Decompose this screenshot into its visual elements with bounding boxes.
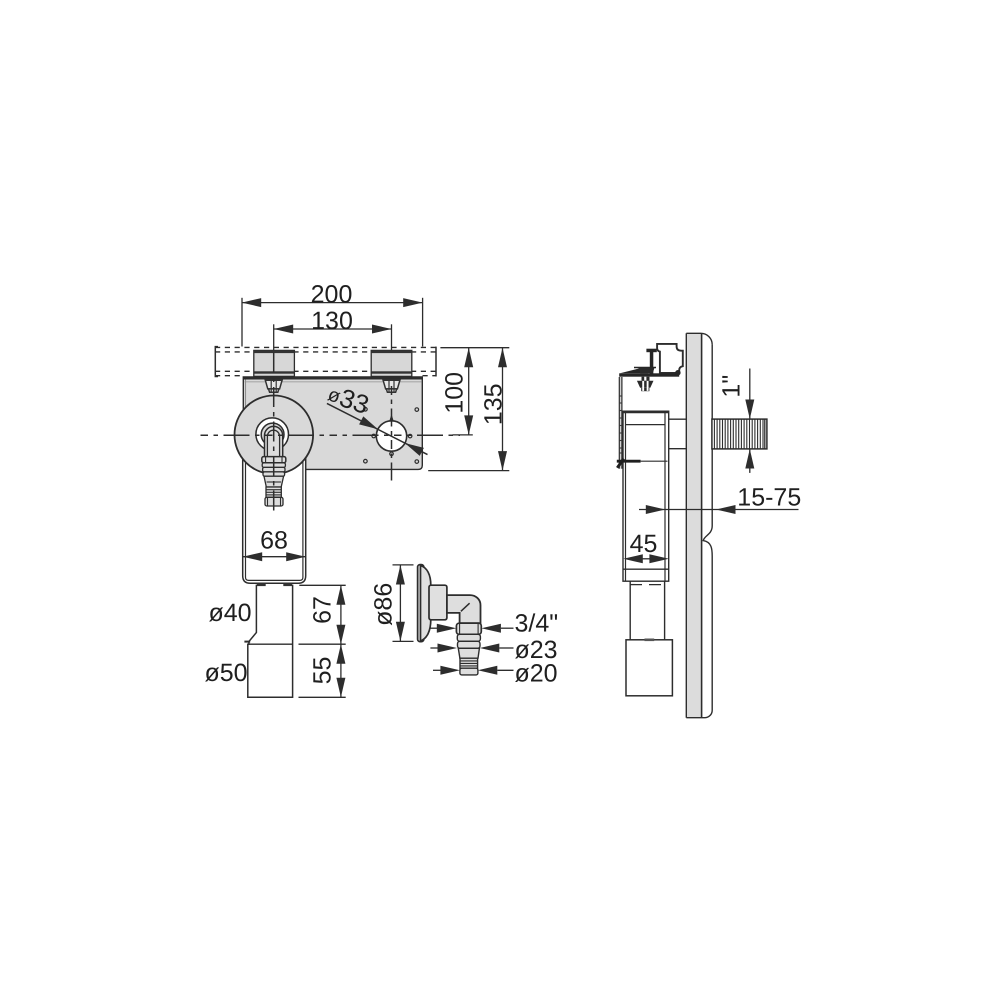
- svg-text:55: 55: [309, 657, 337, 685]
- svg-text:3/4": 3/4": [515, 610, 559, 638]
- svg-text:135: 135: [479, 383, 507, 425]
- svg-text:200: 200: [311, 281, 353, 309]
- svg-text:ø40: ø40: [208, 599, 251, 627]
- svg-text:1": 1": [717, 375, 745, 398]
- svg-text:15-75: 15-75: [737, 483, 801, 511]
- svg-text:45: 45: [630, 530, 658, 558]
- svg-text:68: 68: [260, 527, 288, 555]
- svg-text:130: 130: [311, 307, 353, 335]
- svg-text:67: 67: [309, 596, 337, 624]
- svg-text:100: 100: [440, 372, 468, 414]
- svg-text:ø86: ø86: [369, 583, 397, 626]
- svg-text:ø20: ø20: [515, 660, 558, 688]
- svg-text:ø50: ø50: [204, 659, 247, 687]
